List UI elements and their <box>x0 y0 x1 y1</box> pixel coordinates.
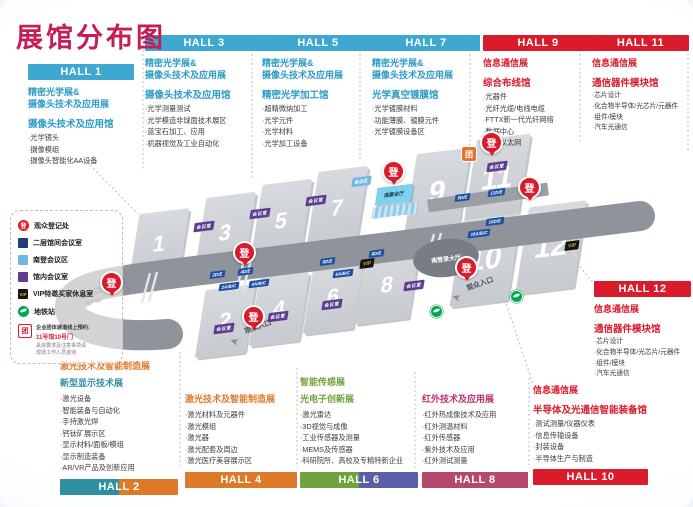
note-line: 现场工作人员咨询 <box>36 349 90 356</box>
exhibit-item: ·光学模造非球面技术展区 <box>145 115 263 127</box>
hall8-info-block: 红外技术及应用展 ·红外热成像技术及应用 ·红外测温材料 ·红外传感器 ·紫外技… <box>422 393 528 488</box>
exhibit-item: ·FTTX新一代光纤网络 <box>483 114 593 126</box>
hall10-footer[interactable]: HALL 10 <box>533 469 648 485</box>
exhibit-item: ·激光模组 <box>185 421 297 433</box>
note-line: 11号馆10号门 <box>36 332 90 341</box>
show-name: 精密光学展& <box>145 57 263 69</box>
hall-number: 8 <box>379 271 395 299</box>
hall11-info-block: HALL 11 信息通信展 通信器件模块馆 ·芯片设计 ·化合物半导体/光芯片/… <box>592 35 689 134</box>
exhibit-item: ·封装设备 <box>533 441 691 453</box>
vip-square-icon: VIP <box>18 289 28 299</box>
vip-lounge-badge: VIP <box>564 240 579 251</box>
exhibit-item: ·光器件 <box>483 91 593 103</box>
legend-item-south-meeting: 南登会议区 <box>18 255 115 265</box>
exhibit-item: ·化合物半导体/光芯片/元器件 <box>592 102 689 113</box>
page-title: 展馆分布图 <box>16 16 166 55</box>
exhibit-item: ·AR/VR产品及创新应用 <box>60 462 178 474</box>
exhibit-item: ·信息传输设备 <box>533 430 691 442</box>
venue-name: 摄像头技术及应用馆 <box>28 116 134 130</box>
show-name: 信息通信展 <box>592 57 689 69</box>
show-name: 精密光学展& <box>28 86 134 98</box>
hall1-header[interactable]: HALL 1 <box>28 64 134 80</box>
hall6-footer[interactable]: HALL 6 <box>300 472 418 488</box>
exhibit-item: ·激光医疗美容展示区 <box>185 455 297 467</box>
exhibit-item: ·钙钛矿展示区 <box>60 428 178 440</box>
exhibit-item: ·红外测试测量 <box>422 455 528 467</box>
hall12-header[interactable]: HALL 12 <box>594 281 691 297</box>
legend-item-registration: 登 观众登记处 <box>18 220 115 231</box>
map-hall-9[interactable]: 9 <box>404 148 471 239</box>
registration-pin: 登 <box>382 160 405 183</box>
exhibit-item: ·光学元件 <box>262 115 374 127</box>
exhibit-item: ·汽车光通信 <box>594 369 691 380</box>
hall4-footer[interactable]: HALL 4 <box>185 472 297 488</box>
navy-square-icon <box>18 238 28 248</box>
note-line: 企业团体通道线上预约: <box>36 324 90 331</box>
registration-pin: 登 <box>242 305 265 328</box>
hall2-footer[interactable]: HALL 2 <box>60 479 178 495</box>
vip-lounge-badge: VIP <box>359 258 374 269</box>
exhibit-item: ·激光配套及周边 <box>185 444 297 456</box>
hall12-info-block: HALL 12 信息通信展 通信器件模块馆 ·芯片设计 ·化合物半导体/光芯片/… <box>594 281 691 380</box>
legend-label: 二层馆间会议室 <box>33 238 82 248</box>
hall4-info-block: 激光技术及智能制造展 ·激光材料及元器件 ·激光模组 ·激光器 ·激光配套及周边… <box>185 393 297 488</box>
hall-number: 5 <box>273 207 289 235</box>
venue-name: 摄像头技术及应用馆 <box>145 87 263 101</box>
exhibit-item: ·MEMS及传感器 <box>300 444 418 456</box>
exhibit-item: ·光纤光缆/电线电缆 <box>483 103 593 115</box>
exhibit-item: ·光学测量测试 <box>145 103 263 115</box>
exhibit-item: ·摄像头智能化AA设备 <box>28 155 134 167</box>
hall-number: 3 <box>217 219 233 247</box>
exhibit-item: ·激光器 <box>185 432 297 444</box>
hall6-info-block: 智能传感展 光电子创新展 ·激光雷达 ·3D视觉与成像 ·工业传感器及测量 ·M… <box>300 376 418 488</box>
exhibit-item: ·功能薄膜、镀膜元件 <box>372 115 480 127</box>
exhibit-item: ·光学镀膜材料 <box>372 103 480 115</box>
show-name: 信息通信展 <box>483 57 593 69</box>
exhibit-item: ·化合物半导体/光芯片/元器件 <box>594 348 691 359</box>
exhibit-item: ·激光材料及元器件 <box>185 409 297 421</box>
hall11-header[interactable]: HALL 11 <box>592 35 689 51</box>
exhibit-item: ·光学镀膜设备区 <box>372 126 480 138</box>
exhibit-item: ·测试测量/仪器仪表 <box>533 418 691 430</box>
legend-label: 馆内会议室 <box>33 272 68 282</box>
show-name: 红外技术及应用展 <box>422 393 528 405</box>
legend-label: 南登会议区 <box>33 255 68 265</box>
exhibit-item: ·光学镜头 <box>28 132 134 144</box>
hall7-header[interactable]: HALL 7 <box>372 35 480 51</box>
exhibit-item: ·紫外技术及应用 <box>422 444 528 456</box>
hall2-info-block: 激光技术及智能制造展 新型显示技术展 ·激光设备 ·智能装备与自动化 ·手持激光… <box>60 360 178 495</box>
exhibition-map-page: 展馆分布图 1 3 5 7 9 11 2 4 6 8 10 12 南宴会厅 南登… <box>0 0 693 507</box>
exhibit-item: ·机器视觉及工业自动化 <box>145 138 263 150</box>
legend-label: 地铁站 <box>34 307 55 317</box>
meeting-area-badge: 会议区 <box>351 176 371 188</box>
metro-station-icon <box>510 290 523 303</box>
registration-pin-icon: 登 <box>18 220 29 231</box>
exhibit-item: ·红外热成像技术及应用 <box>422 409 528 421</box>
exhibit-item: ·芯片设计 <box>592 91 689 102</box>
show-name: 激光技术及智能制造展 <box>185 393 297 405</box>
lightblue-square-icon <box>18 255 28 265</box>
exhibit-item: ·智能装备与自动化 <box>60 405 178 417</box>
exhibit-item: ·光学加工设备 <box>262 138 374 150</box>
zone-label: 2D/E <box>209 270 225 279</box>
group-channel-icon: 团 <box>18 324 32 338</box>
registration-pin: 登 <box>455 256 478 279</box>
exhibit-item: ·芯片设计 <box>594 337 691 348</box>
hall10-info-block: 信息通信展 半导体及光通信智能装备馆 ·测试测量/仪器仪表 ·信息传输设备 ·封… <box>533 384 691 485</box>
show-name: 新型显示技术展 <box>60 377 178 389</box>
exhibit-item: ·汽车光通信 <box>592 123 689 134</box>
exhibit-item: ·工业传感器及测量 <box>300 432 418 444</box>
exhibit-item: ·显示制造装备 <box>60 451 178 463</box>
hall9-info-block: HALL 9 信息通信展 综合布线馆 ·光器件 ·光纤光缆/电线电缆 ·FTTX… <box>483 35 593 149</box>
exhibit-item: ·光学材料 <box>262 126 374 138</box>
show-name: 精密光学展& <box>262 57 374 69</box>
hall-number: 1 <box>151 230 167 258</box>
hall9-header[interactable]: HALL 9 <box>483 35 593 51</box>
hall5-header[interactable]: HALL 5 <box>262 35 374 51</box>
exhibit-item: ·手持激光焊 <box>60 416 178 428</box>
exhibit-item: ·激光设备 <box>60 393 178 405</box>
show-name: 智能传感展 <box>300 376 418 388</box>
exhibit-item: ·激光雷达 <box>300 409 418 421</box>
legend-group-note: 团 企业团体通道线上预约: 11号馆10号门 具体要求及注意事项请 现场工作人员… <box>18 324 115 356</box>
exhibit-item: ·半导体生产与制造 <box>533 453 691 465</box>
map-hall-5[interactable]: 5 <box>250 179 312 263</box>
show-name: 精密光学展& <box>372 57 480 69</box>
legend-item-metro: 地铁站 <box>18 306 115 317</box>
venue-name: 综合布线馆 <box>483 75 593 89</box>
show-name: 摄像头技术及应用展 <box>372 69 480 81</box>
exhibit-item: ·3D视觉与成像 <box>300 421 418 433</box>
hall1-info-block: HALL 1 精密光学展& 摄像头技术及应用展 摄像头技术及应用馆 ·光学镜头 … <box>28 64 134 167</box>
map-hall-1[interactable]: 1 <box>129 208 189 280</box>
venue-name: 半导体及光通信智能装备馆 <box>533 402 691 416</box>
show-name: 摄像头技术及应用展 <box>28 98 134 110</box>
show-name: 信息通信展 <box>594 303 691 315</box>
exhibit-item: ·显示材料/面板/模组 <box>60 439 178 451</box>
exhibit-item: ·科研院所、高校及专精特新企业 <box>300 455 418 467</box>
purple-square-icon <box>18 272 28 282</box>
metro-icon <box>18 306 29 317</box>
registration-pin: 登 <box>233 241 256 264</box>
legend-item-upper-meeting: 二层馆间会议室 <box>18 238 115 248</box>
exhibit-item: ·红外传感器 <box>422 432 528 444</box>
show-name: 光电子创新展 <box>300 393 418 405</box>
exhibit-item: ·红外测温材料 <box>422 421 528 433</box>
exhibit-item: ·摄像模组 <box>28 144 134 156</box>
show-name: 摄像头技术及应用展 <box>262 69 374 81</box>
hall-number: 9 <box>426 175 448 212</box>
show-name: 信息通信展 <box>533 384 691 396</box>
venue-name: 精密光学加工馆 <box>262 87 374 101</box>
venue-name: 通信器件模块馆 <box>594 321 691 335</box>
show-name: 摄像头技术及应用展 <box>145 69 263 81</box>
hall-number: 7 <box>329 194 345 222</box>
exhibit-item: ·组件/模块 <box>594 359 691 370</box>
registration-pin: 登 <box>100 271 123 294</box>
legend-label: 观众登记处 <box>34 221 69 231</box>
registration-pin: 登 <box>518 176 541 199</box>
exhibit-item: ·超精微纳加工 <box>262 103 374 115</box>
note-line: 具体要求及注意事项请 <box>36 342 90 349</box>
venue-name: 通信器件模块馆 <box>592 75 689 89</box>
exhibit-item: ·蓝宝石加工、应用 <box>145 126 263 138</box>
legend-item-vip: VIP VIP特邀买家休息室 <box>18 289 115 299</box>
group-channel-badge: 团 <box>461 146 477 162</box>
hall5-info-block: HALL 5 精密光学展& 摄像头技术及应用展 精密光学加工馆 ·超精微纳加工 … <box>262 35 374 149</box>
hall7-info-block: HALL 7 精密光学展& 摄像头技术及应用展 光学真空镀膜馆 ·光学镀膜材料 … <box>372 35 480 138</box>
venue-name: 光学真空镀膜馆 <box>372 87 480 101</box>
registration-pin: 登 <box>480 131 503 154</box>
metro-station-icon <box>430 305 443 318</box>
meeting-room-badge: 会议室 <box>403 280 424 292</box>
hall8-footer[interactable]: HALL 8 <box>422 472 528 488</box>
exhibit-item: ·组件/模块 <box>592 113 689 124</box>
entrance-arrow-icon: ➤ <box>123 283 135 296</box>
legend-label: VIP特邀买家休息室 <box>33 289 93 299</box>
